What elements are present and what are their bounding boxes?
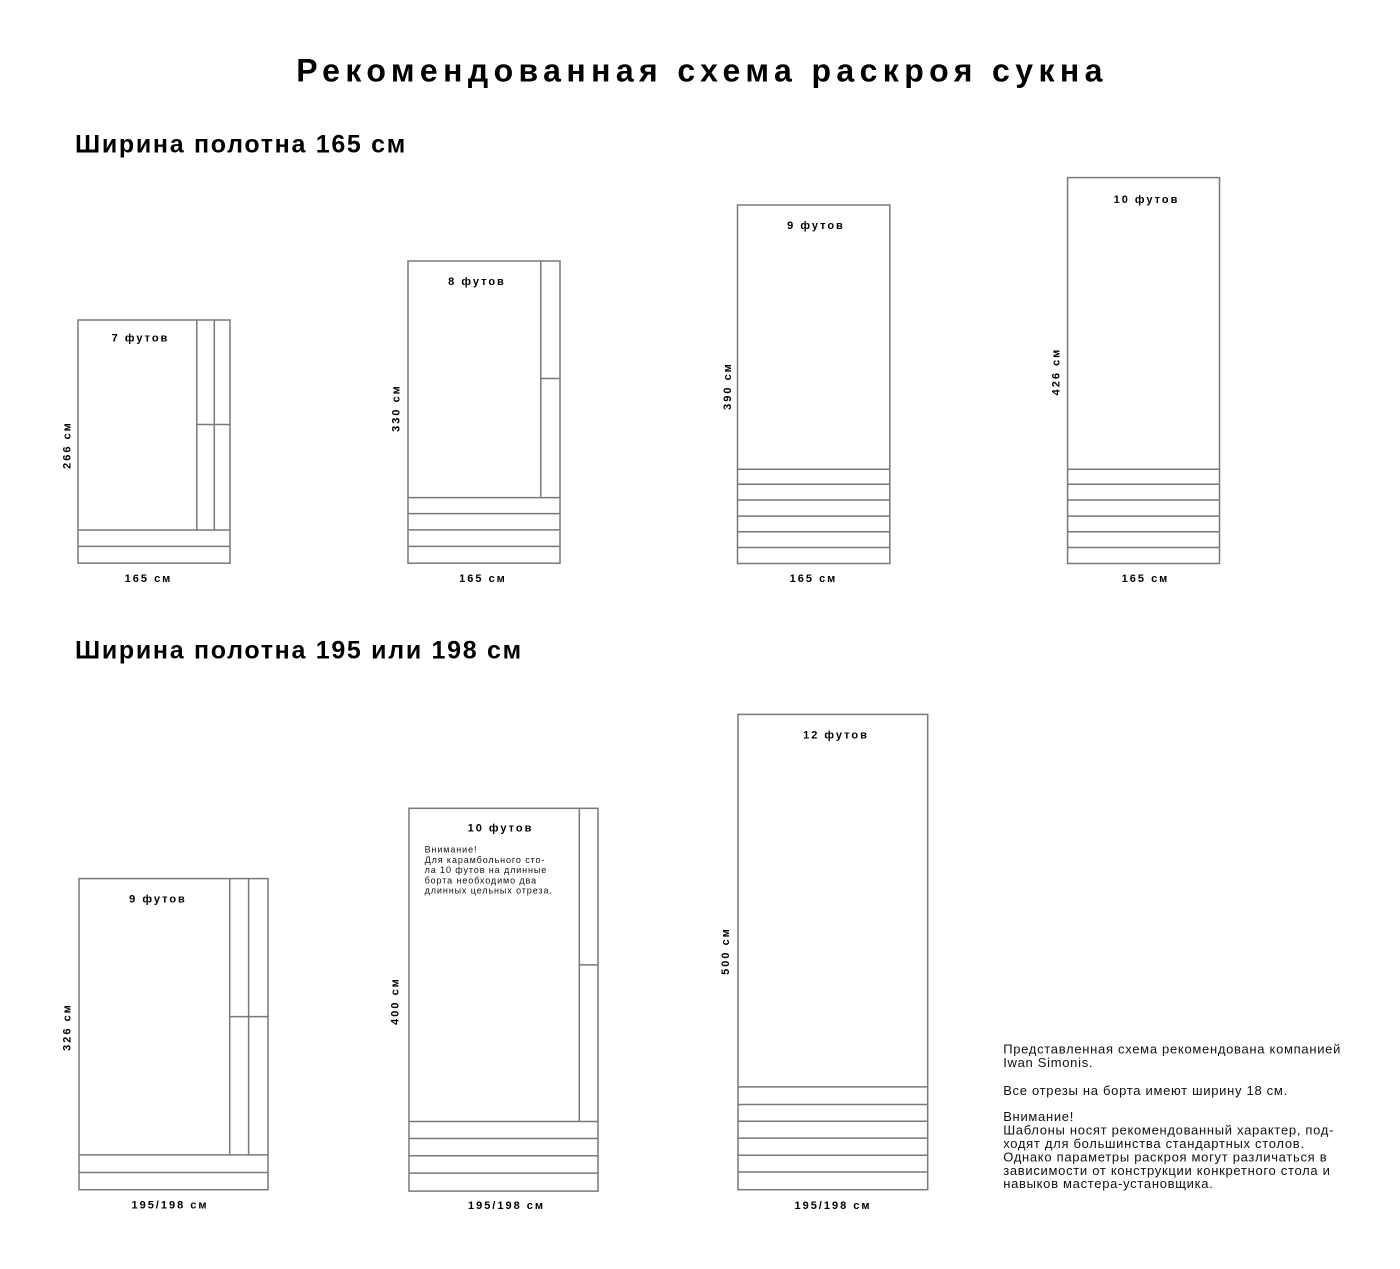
svg-text:Внимание!: Внимание! — [425, 845, 478, 855]
svg-text:195/198 см: 195/198 см — [131, 1200, 208, 1212]
svg-text:426 см: 426 см — [1051, 348, 1063, 396]
svg-text:195/198 см: 195/198 см — [794, 1200, 871, 1212]
svg-text:165 см: 165 см — [1122, 573, 1170, 585]
svg-text:Ширина полотна 165 см: Ширина полотна 165 см — [75, 131, 407, 159]
svg-text:ла 10 футов на длинные: ла 10 футов на длинные — [425, 865, 548, 875]
svg-text:400 см: 400 см — [390, 977, 402, 1025]
svg-text:165 см: 165 см — [125, 573, 173, 585]
svg-text:Ширина полотна 195 или 198 см: Ширина полотна 195 или 198 см — [75, 637, 523, 665]
svg-text:266 см: 266 см — [62, 421, 74, 469]
svg-text:330 см: 330 см — [391, 384, 403, 432]
svg-text:10 футов: 10 футов — [468, 823, 534, 835]
svg-text:165 см: 165 см — [459, 573, 507, 585]
svg-text:12 футов: 12 футов — [803, 730, 869, 742]
svg-text:Для карамбольного сто-: Для карамбольного сто- — [425, 855, 546, 865]
svg-text:10 футов: 10 футов — [1114, 194, 1180, 206]
svg-text:7 футов: 7 футов — [112, 333, 170, 345]
svg-text:165 см: 165 см — [790, 573, 838, 585]
svg-text:навыков мастера-установщика.: навыков мастера-установщика. — [1003, 1176, 1213, 1191]
svg-text:500 см: 500 см — [720, 927, 732, 975]
svg-text:9 футов: 9 футов — [129, 894, 187, 906]
svg-text:390 см: 390 см — [722, 362, 734, 410]
svg-text:326 см: 326 см — [62, 1003, 74, 1051]
svg-text:Iwan Simonis.: Iwan Simonis. — [1003, 1055, 1093, 1070]
svg-text:8 футов: 8 футов — [448, 276, 506, 288]
svg-text:Рекомендованная схема раскроя: Рекомендованная схема раскроя сукна — [296, 53, 1108, 89]
svg-text:длинных цельных отреза.: длинных цельных отреза. — [425, 886, 553, 896]
svg-text:195/198 см: 195/198 см — [468, 1200, 545, 1212]
svg-text:Все отрезы на борта имеют шири: Все отрезы на борта имеют ширину 18 см. — [1003, 1083, 1288, 1098]
svg-text:борта необходимо два: борта необходимо два — [425, 875, 537, 885]
svg-text:9 футов: 9 футов — [787, 220, 845, 232]
